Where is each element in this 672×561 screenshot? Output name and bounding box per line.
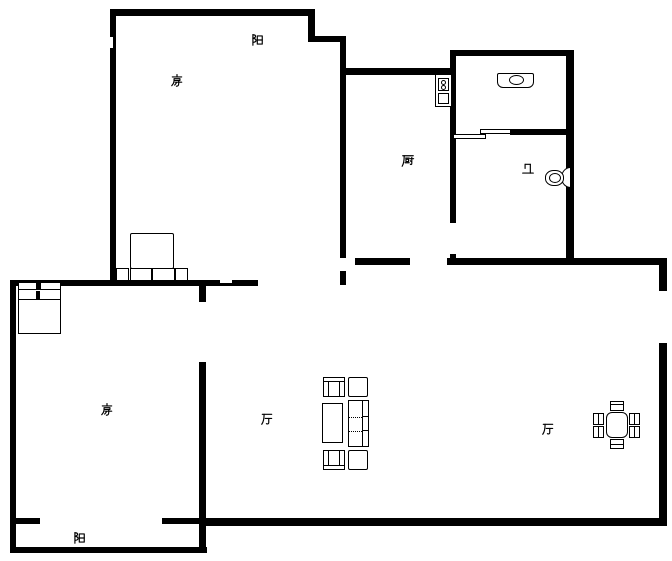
wall-hall-left-segment <box>355 258 410 265</box>
room-label-dining-room: 厅 <box>541 422 555 436</box>
stove-burner-circle <box>441 85 446 90</box>
sofa-icon <box>348 400 369 447</box>
bed-center-tick <box>36 283 41 289</box>
room-label-text: 阳 <box>250 47 251 48</box>
sofa-back-divider <box>363 430 368 431</box>
dining-table-icon <box>606 412 628 438</box>
armchair-arm-line <box>328 450 329 465</box>
room-label-bedroom-bottom: 房 <box>100 403 114 417</box>
wall-balcony-bottom <box>10 547 207 553</box>
wash-basin-bowl <box>509 75 524 85</box>
room-label-text: 房 <box>170 88 171 89</box>
armchair-icon <box>323 377 345 397</box>
dining-chair-line <box>611 444 623 445</box>
side-table-icon <box>348 450 368 470</box>
wall-kitchen-left-stub <box>340 271 346 285</box>
sofa-cushion-dotline <box>349 431 362 432</box>
dining-chair-line <box>598 427 599 437</box>
room-label-text: 卫 <box>521 176 522 177</box>
bed-body-icon <box>130 233 174 269</box>
room-label-text: 厅 <box>260 426 261 427</box>
nightstand-icon <box>116 268 129 281</box>
armchair-back-line <box>324 381 344 382</box>
room-label-bedroom-top: 房 <box>170 74 184 88</box>
wall-top-bedroom-left <box>110 9 116 282</box>
bed-headboard-line <box>19 289 60 290</box>
room-label-text: 房 <box>100 417 101 418</box>
wall-bath-inner-divider <box>510 129 574 135</box>
room-label-text: 阳 <box>72 545 73 546</box>
dining-chair-line <box>598 414 599 424</box>
wall-living-divider-upper <box>199 280 206 302</box>
bed-pillow-line <box>19 299 60 300</box>
stove-sink-box <box>438 93 449 104</box>
armchair-arm-line <box>339 450 340 465</box>
armchair-arm-line <box>339 381 340 396</box>
wall-notch-window <box>110 37 113 48</box>
wall-right-lower <box>659 343 667 526</box>
room-label-balcony-bottom: 阳 <box>72 531 86 545</box>
room-label-balcony-top: 阳 <box>250 33 264 47</box>
bed-pillow-divider <box>36 291 40 299</box>
wall-door-jamb <box>450 254 456 259</box>
wall-living-bottom <box>199 518 667 526</box>
dining-chair-icon <box>610 401 624 411</box>
armchair-arm-line <box>328 381 329 396</box>
coffee-table-icon <box>322 403 343 443</box>
wall-bottomroom-bottom-seg1 <box>10 518 40 524</box>
wall-hall-right-segment <box>447 258 667 265</box>
toilet-bowl-inner <box>549 173 561 183</box>
armchair-back-line <box>324 465 344 466</box>
dining-chair-line <box>634 414 635 424</box>
wall-bath-top <box>450 50 574 56</box>
bed-pillow-divider <box>151 269 153 280</box>
sliding-door-leaf-icon <box>453 134 486 139</box>
sofa-cushion-dotline <box>349 417 362 418</box>
side-table-icon <box>348 377 368 397</box>
wall-left-lower <box>10 280 16 553</box>
armchair-icon <box>323 450 345 470</box>
room-label-text: 厅 <box>541 436 542 437</box>
sofa-back-divider <box>363 416 368 417</box>
sofa-back-line <box>362 401 363 446</box>
dining-chair-line <box>634 427 635 437</box>
wall-notch-door <box>220 280 232 283</box>
wall-top-bedroom-top <box>110 9 315 16</box>
room-label-bathroom: 卫 <box>521 162 535 176</box>
room-label-text: 厨 <box>401 168 402 169</box>
dining-chair-line <box>611 404 623 405</box>
room-label-kitchen: 厨 <box>401 154 415 168</box>
room-label-living-room: 厅 <box>260 412 274 426</box>
wall-bath-right <box>566 50 574 265</box>
floor-plan: 阳 房 厨 卫 房 厅 厅 阳 <box>0 0 672 561</box>
wall-right-upper <box>659 262 667 291</box>
nightstand-icon <box>175 268 188 281</box>
